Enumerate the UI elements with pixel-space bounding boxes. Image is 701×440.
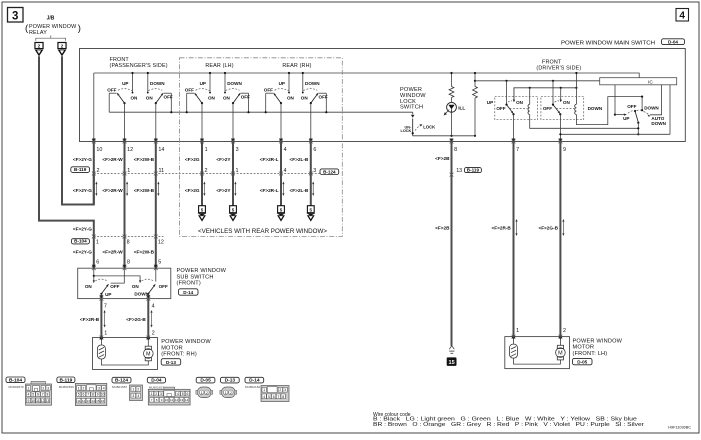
svg-text:13: 13 bbox=[180, 398, 184, 402]
svg-text:1: 1 bbox=[78, 386, 80, 390]
svg-text:UP: UP bbox=[105, 292, 111, 297]
svg-text:13: 13 bbox=[46, 399, 50, 403]
svg-text:<F>2L-B: <F>2L-B bbox=[290, 157, 309, 162]
svg-text:7: 7 bbox=[277, 395, 279, 399]
svg-text:6: 6 bbox=[273, 395, 275, 399]
svg-text:6: 6 bbox=[313, 147, 316, 153]
svg-text:1: 1 bbox=[201, 391, 203, 395]
svg-text:OFF: OFF bbox=[627, 104, 636, 109]
svg-text:J/B: J/B bbox=[47, 16, 55, 22]
svg-text:10: 10 bbox=[96, 147, 102, 153]
svg-text:2: 2 bbox=[155, 392, 157, 396]
svg-text:<F>2W-B: <F>2W-B bbox=[134, 157, 155, 162]
svg-text:D-04: D-04 bbox=[668, 39, 678, 44]
svg-text:1: 1 bbox=[516, 328, 519, 334]
svg-text:MU801556: MU801556 bbox=[59, 385, 74, 389]
svg-text:2: 2 bbox=[42, 386, 44, 390]
svg-text:ON: ON bbox=[132, 284, 140, 289]
svg-text:9: 9 bbox=[563, 147, 566, 153]
svg-text:LOCK: LOCK bbox=[423, 125, 435, 130]
svg-text:DOWN: DOWN bbox=[588, 106, 603, 111]
svg-text:2: 2 bbox=[279, 388, 281, 392]
svg-text:12: 12 bbox=[175, 398, 179, 402]
svg-text:OFF: OFF bbox=[496, 106, 505, 111]
svg-text:OFF: OFF bbox=[164, 95, 173, 100]
svg-text:<F>2G-B: <F>2G-B bbox=[538, 225, 558, 230]
svg-text:<F>2W-B: <F>2W-B bbox=[134, 188, 155, 193]
svg-text:1: 1 bbox=[225, 391, 227, 395]
svg-text:IC: IC bbox=[648, 79, 653, 85]
svg-text:<F>2Y-G: <F>2Y-G bbox=[73, 226, 92, 231]
svg-text:<F>2Y-G: <F>2Y-G bbox=[73, 157, 92, 162]
svg-text:3: 3 bbox=[47, 386, 49, 390]
svg-text:5: 5 bbox=[78, 393, 80, 397]
svg-text:<VEHICLES WITH REAR POWER WIND: <VEHICLES WITH REAR POWER WINDOW> bbox=[198, 228, 327, 235]
svg-text:OFF: OFF bbox=[241, 95, 250, 100]
svg-text:MU801687: MU801687 bbox=[112, 385, 127, 389]
svg-text:<F>2R-W: <F>2R-W bbox=[102, 157, 123, 162]
svg-text:B-119: B-119 bbox=[74, 167, 87, 172]
svg-text:6: 6 bbox=[187, 392, 189, 396]
svg-text:14: 14 bbox=[91, 399, 95, 403]
svg-text:12: 12 bbox=[82, 399, 86, 403]
svg-text:8: 8 bbox=[127, 260, 130, 266]
svg-text:UP: UP bbox=[122, 81, 128, 86]
svg-text:12: 12 bbox=[158, 240, 164, 246]
svg-text:7: 7 bbox=[87, 393, 89, 397]
svg-text:ON: ON bbox=[301, 96, 309, 101]
svg-text:OFF: OFF bbox=[543, 106, 552, 111]
svg-text:B-124: B-124 bbox=[115, 378, 128, 384]
svg-text:7: 7 bbox=[42, 393, 44, 397]
svg-text:OFF: OFF bbox=[107, 87, 116, 92]
svg-text:B-104: B-104 bbox=[9, 377, 22, 383]
svg-text:2: 2 bbox=[97, 168, 100, 174]
svg-text:1: 1 bbox=[263, 388, 265, 392]
svg-text:2: 2 bbox=[563, 328, 566, 334]
svg-text:13: 13 bbox=[87, 399, 91, 403]
svg-text:4: 4 bbox=[103, 386, 105, 390]
svg-text:8: 8 bbox=[92, 393, 94, 397]
svg-text:(PASSENGER'S SIDE): (PASSENGER'S SIDE) bbox=[110, 63, 168, 69]
svg-text:2: 2 bbox=[152, 331, 155, 337]
svg-text:ON: ON bbox=[563, 100, 571, 105]
svg-text:9: 9 bbox=[28, 399, 30, 403]
svg-text:4: 4 bbox=[28, 393, 30, 397]
svg-text:D-14: D-14 bbox=[183, 290, 193, 295]
svg-text:FRONT: FRONT bbox=[110, 57, 130, 63]
svg-text:6: 6 bbox=[37, 393, 39, 397]
svg-text:SUB SWITCH: SUB SWITCH bbox=[177, 274, 214, 280]
svg-text:5: 5 bbox=[32, 393, 34, 397]
svg-text:3: 3 bbox=[132, 394, 134, 398]
svg-text:<F>2G: <F>2G bbox=[185, 188, 200, 193]
svg-text:7: 7 bbox=[104, 304, 107, 310]
svg-text:15: 15 bbox=[448, 360, 454, 366]
svg-text:ILL: ILL bbox=[458, 106, 465, 111]
svg-text:<F>2Y: <F>2Y bbox=[216, 157, 231, 162]
svg-text:UP: UP bbox=[200, 81, 206, 86]
svg-text:D-04: D-04 bbox=[151, 378, 162, 384]
svg-text:DOWN: DOWN bbox=[150, 81, 165, 86]
svg-text:<F>2W-B: <F>2W-B bbox=[134, 249, 155, 254]
svg-text:D-05: D-05 bbox=[200, 378, 211, 384]
svg-text:1: 1 bbox=[96, 240, 99, 246]
svg-text:<F>2B: <F>2B bbox=[435, 225, 450, 230]
svg-text:ON: ON bbox=[208, 96, 216, 101]
svg-text:4: 4 bbox=[284, 147, 287, 153]
svg-text:5: 5 bbox=[182, 392, 184, 396]
svg-text:12: 12 bbox=[41, 399, 45, 403]
svg-text:<F>2G-B: <F>2G-B bbox=[126, 317, 146, 322]
svg-text:MOTOR: MOTOR bbox=[161, 345, 183, 351]
svg-text:2: 2 bbox=[205, 168, 208, 174]
svg-text:OFF: OFF bbox=[110, 284, 119, 289]
svg-text:OFF: OFF bbox=[319, 95, 328, 100]
svg-text:(FRONT: LH): (FRONT: LH) bbox=[573, 351, 608, 357]
svg-text:6: 6 bbox=[83, 393, 85, 397]
svg-text:MOTOR: MOTOR bbox=[573, 345, 595, 351]
svg-text:11: 11 bbox=[170, 398, 173, 402]
svg-text:POWER WINDOW: POWER WINDOW bbox=[177, 268, 227, 274]
svg-text:BR : Brown O : Orange GR :: BR : Brown O : Orange GR : Grey R : Red … bbox=[373, 422, 644, 428]
svg-text:5: 5 bbox=[268, 395, 270, 399]
svg-text:1: 1 bbox=[132, 388, 134, 392]
svg-text:B-119: B-119 bbox=[467, 167, 480, 172]
svg-text:2: 2 bbox=[38, 44, 41, 50]
svg-text:OFF: OFF bbox=[264, 87, 273, 92]
svg-text:8: 8 bbox=[282, 395, 284, 399]
svg-text:ON: ON bbox=[85, 284, 93, 289]
svg-text:4: 4 bbox=[152, 304, 155, 310]
svg-text:13: 13 bbox=[456, 168, 462, 174]
svg-text:D-05: D-05 bbox=[577, 360, 587, 365]
svg-text:9: 9 bbox=[97, 393, 99, 397]
svg-text:1: 1 bbox=[236, 168, 239, 174]
svg-text:1: 1 bbox=[104, 331, 107, 337]
svg-text:15: 15 bbox=[96, 399, 100, 403]
svg-text:<F>2R-L: <F>2R-L bbox=[260, 188, 279, 193]
svg-text:1: 1 bbox=[127, 168, 130, 174]
svg-text:DOWN: DOWN bbox=[305, 81, 320, 86]
svg-text:3: 3 bbox=[160, 392, 162, 396]
svg-text:3: 3 bbox=[236, 147, 239, 153]
svg-text:4: 4 bbox=[137, 394, 139, 398]
svg-text:5: 5 bbox=[158, 260, 161, 266]
svg-text:<F>2R-W: <F>2R-W bbox=[102, 188, 123, 193]
svg-text:MU804579: MU804579 bbox=[9, 385, 24, 389]
svg-text:3: 3 bbox=[12, 10, 18, 22]
svg-text:ON: ON bbox=[223, 96, 231, 101]
svg-text:3: 3 bbox=[98, 386, 100, 390]
svg-text:(DRIVER'S SIDE): (DRIVER'S SIDE) bbox=[536, 66, 581, 72]
svg-text:POWER WINDOW: POWER WINDOW bbox=[161, 339, 211, 345]
svg-text:H9F11030BC: H9F11030BC bbox=[668, 426, 691, 430]
svg-text:7: 7 bbox=[516, 147, 519, 153]
svg-text:B-104: B-104 bbox=[74, 239, 87, 244]
svg-text:M: M bbox=[146, 352, 151, 358]
svg-text:<F>2R-B: <F>2R-B bbox=[492, 225, 512, 230]
svg-text:1: 1 bbox=[28, 386, 30, 390]
svg-text:2: 2 bbox=[230, 391, 232, 395]
svg-text:RELAY: RELAY bbox=[29, 30, 47, 36]
svg-text:<F>2Y: <F>2Y bbox=[216, 188, 231, 193]
svg-text:10: 10 bbox=[31, 399, 35, 403]
svg-text:OFF: OFF bbox=[159, 284, 168, 289]
svg-text:SWITCH: SWITCH bbox=[400, 105, 423, 111]
svg-text:UP: UP bbox=[623, 116, 629, 121]
svg-text:1: 1 bbox=[151, 392, 153, 396]
svg-text:12: 12 bbox=[127, 147, 133, 153]
svg-text:DOWN: DOWN bbox=[644, 106, 659, 111]
svg-text:MU801657: MU801657 bbox=[149, 385, 164, 389]
svg-text:2: 2 bbox=[137, 388, 139, 392]
svg-text:6: 6 bbox=[96, 260, 99, 266]
svg-text:11: 11 bbox=[36, 399, 40, 403]
svg-text:<F>2Y-G: <F>2Y-G bbox=[73, 249, 92, 254]
svg-text:<F>2G: <F>2G bbox=[185, 157, 200, 162]
svg-text:8: 8 bbox=[454, 147, 457, 153]
svg-text:B-119: B-119 bbox=[59, 377, 72, 383]
svg-text:8: 8 bbox=[127, 240, 130, 246]
svg-text:POWER WINDOW: POWER WINDOW bbox=[573, 338, 623, 344]
svg-text:14: 14 bbox=[185, 398, 189, 402]
svg-text:ON: ON bbox=[130, 96, 138, 101]
svg-text:2: 2 bbox=[61, 44, 64, 50]
svg-text:2: 2 bbox=[83, 386, 85, 390]
svg-text:UP: UP bbox=[279, 81, 285, 86]
svg-text:4: 4 bbox=[177, 392, 179, 396]
svg-text:D-14: D-14 bbox=[249, 378, 260, 384]
svg-text:B-124: B-124 bbox=[323, 169, 336, 174]
svg-text:(FRONT: RH): (FRONT: RH) bbox=[161, 352, 197, 358]
svg-text:10: 10 bbox=[101, 393, 105, 397]
svg-text:8: 8 bbox=[47, 393, 49, 397]
svg-text:<F>2R-B: <F>2R-B bbox=[80, 317, 100, 322]
svg-text:): ) bbox=[78, 23, 81, 34]
svg-text:FRONT: FRONT bbox=[542, 59, 562, 65]
svg-text:<F>2L-B: <F>2L-B bbox=[290, 188, 309, 193]
svg-text:REAR (RH): REAR (RH) bbox=[282, 63, 311, 69]
svg-text:LOCK: LOCK bbox=[401, 129, 412, 133]
svg-text:DOWN: DOWN bbox=[227, 81, 242, 86]
svg-text:2: 2 bbox=[206, 391, 208, 395]
svg-text:POWER WINDOW MAIN SWITCH: POWER WINDOW MAIN SWITCH bbox=[561, 40, 655, 46]
svg-text:<F>2R-L: <F>2R-L bbox=[260, 157, 279, 162]
svg-text:OFF: OFF bbox=[185, 87, 194, 92]
svg-text:14: 14 bbox=[158, 147, 164, 153]
svg-text:DOWN: DOWN bbox=[651, 121, 666, 126]
svg-text:ON: ON bbox=[287, 96, 295, 101]
svg-text:M: M bbox=[558, 351, 563, 357]
svg-text:3: 3 bbox=[313, 168, 316, 174]
svg-text:REAR (LH): REAR (LH) bbox=[205, 63, 233, 69]
svg-text:<F>2R-W: <F>2R-W bbox=[102, 249, 123, 254]
svg-text:D-13: D-13 bbox=[225, 378, 236, 384]
svg-text:ON: ON bbox=[516, 100, 524, 105]
svg-text:1: 1 bbox=[205, 147, 208, 153]
svg-text:<F>2B: <F>2B bbox=[435, 156, 450, 161]
svg-text:(FRONT): (FRONT) bbox=[177, 281, 201, 287]
svg-text:ON: ON bbox=[146, 96, 154, 101]
svg-text:4: 4 bbox=[679, 11, 685, 22]
svg-text:MU802162: MU802162 bbox=[245, 385, 260, 389]
svg-text:11: 11 bbox=[77, 399, 80, 403]
svg-text:D-13: D-13 bbox=[166, 360, 176, 365]
svg-text:11: 11 bbox=[159, 168, 165, 174]
svg-text:<F>2Y-G: <F>2Y-G bbox=[73, 188, 92, 193]
svg-text:4: 4 bbox=[284, 168, 287, 174]
svg-text:10: 10 bbox=[165, 398, 169, 402]
svg-text:16: 16 bbox=[101, 399, 105, 403]
svg-text:3: 3 bbox=[284, 388, 286, 392]
svg-text:UP: UP bbox=[487, 100, 493, 105]
svg-text:4: 4 bbox=[263, 395, 265, 399]
